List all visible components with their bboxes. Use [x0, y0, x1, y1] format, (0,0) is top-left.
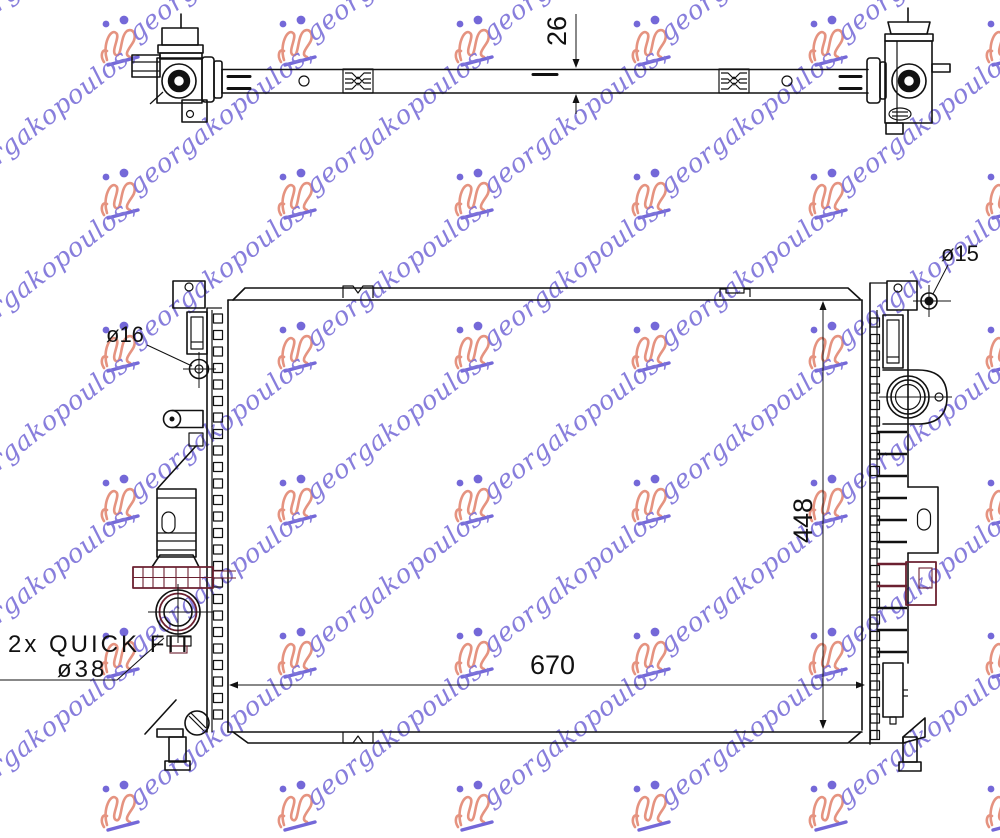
quickfit-label: 2x QUICK FIT — [8, 631, 195, 658]
callout-quickfit: 2x QUICK FIT ø38 — [0, 631, 195, 683]
dimension-core-width: 670 — [229, 650, 865, 689]
radiator-technical-drawing: 26 — [0, 0, 1000, 778]
left-bottom-pipe — [169, 737, 186, 762]
top-crossmember: 26 — [132, 8, 950, 134]
left-port-label: ø16 — [106, 322, 144, 347]
right-main-port — [879, 352, 952, 442]
callout-port-16: ø16 — [106, 322, 192, 366]
callout-port-15: ø15 — [933, 241, 979, 294]
right-keyhole-bracket — [908, 487, 938, 553]
left-tank-seam-bumps — [214, 314, 223, 719]
watermark-logo — [984, 779, 1000, 838]
right-tank-seam-bumps — [871, 318, 880, 740]
drain-screw — [185, 711, 209, 735]
keyhole-slot — [162, 512, 175, 533]
right-lower-box — [883, 663, 903, 717]
left-port-16 — [183, 352, 216, 388]
quickfit-dia-label: ø38 — [57, 656, 107, 683]
core-top-tab — [720, 289, 750, 297]
right-port-15 — [913, 285, 951, 317]
dimension-core-height: 448 — [788, 301, 827, 729]
right-tank-ribs — [877, 432, 907, 652]
bar-left-fitting — [132, 14, 222, 122]
left-tank — [133, 281, 236, 770]
core-height-label: 448 — [788, 498, 818, 543]
bar-thickness-label: 26 — [542, 16, 572, 46]
right-tank — [850, 281, 952, 771]
right-top-bracket — [887, 281, 917, 310]
bar-clip-right — [719, 69, 749, 93]
dimension-bar-thickness: 26 — [542, 14, 580, 114]
bar-hole-right — [782, 76, 792, 86]
right-bottom-triangle — [903, 718, 925, 743]
core-width-label: 670 — [530, 650, 575, 680]
bar-hole-left — [299, 76, 309, 86]
radiator-front-view: 448 670 ø16 ø15 2x QUICK FIT ø38 — [0, 241, 979, 771]
core-bottom-clip — [343, 732, 373, 743]
left-top-bracket — [173, 281, 205, 308]
right-port-label: ø15 — [941, 241, 979, 266]
catalog-drawing-page: { "title": "Radiator technical drawing",… — [0, 0, 1000, 778]
bar-right-fitting — [867, 8, 950, 134]
bar-clip-left — [343, 69, 373, 93]
